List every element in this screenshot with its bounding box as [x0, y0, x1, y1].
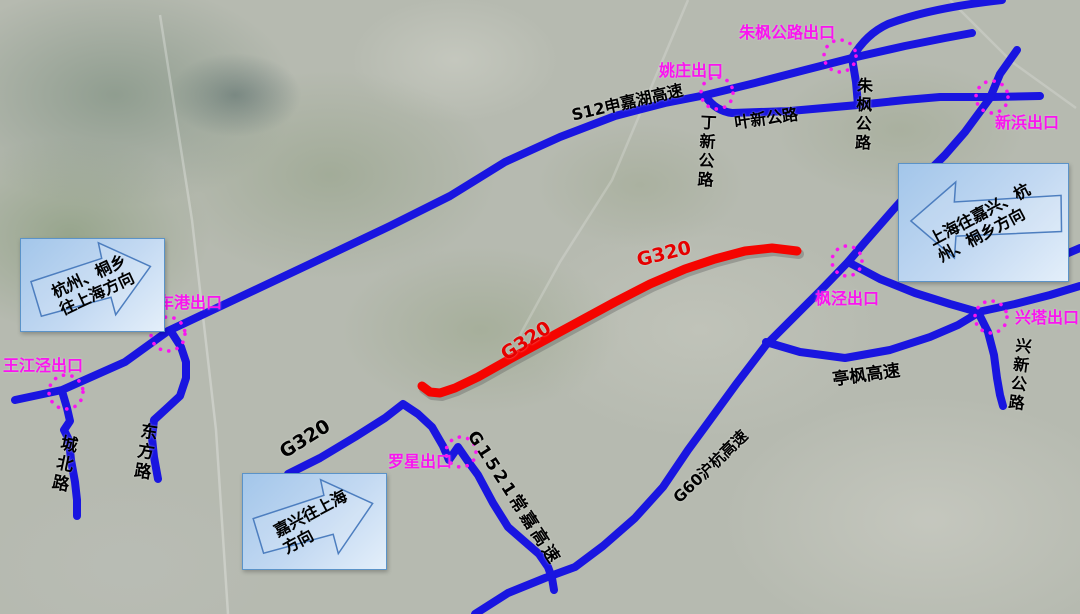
yaozhuang-exit-label: 姚庄出口	[659, 57, 723, 81]
tingfeng-expressway-line	[766, 313, 978, 358]
callout-hangzhou-tongxiang-to-shanghai: 杭州、桐乡 往上海方向	[20, 238, 165, 332]
xingxin-highway-line	[978, 312, 1003, 406]
callout-jiaxing-to-shanghai: 嘉兴往上海 方向	[242, 473, 387, 570]
xinbang-exit-label: 新浜出口	[995, 109, 1059, 133]
wangjiangjing-exit-label: 王江泾出口	[3, 352, 83, 376]
s12-shenjiahu-expressway-line	[15, 33, 972, 400]
fengjing-exit-label: 枫泾出口	[815, 285, 879, 309]
dingxin-road-label: 丁新公路	[695, 114, 715, 191]
luoxing-exit-label: 罗星出口	[388, 448, 452, 472]
zhufeng-exit-label: 朱枫公路出口	[739, 19, 835, 43]
zhufeng-road-label: 朱枫公路	[853, 77, 872, 154]
chegang-exit-label: 车港出口	[158, 289, 222, 313]
g320-red-road-line	[422, 248, 797, 393]
highway-map: S12申嘉湖高速 丁新公路 叶新公路 朱枫公路 城北路 东方路 G320 G15…	[0, 0, 1080, 614]
xingta-exit-label: 兴塔出口	[1015, 304, 1079, 328]
callout-shanghai-to-jiaxing-hangzhou-tongxiang: 上海往嘉兴、杭 州、桐乡方向	[898, 163, 1069, 282]
dongfang-road-line	[152, 333, 186, 479]
